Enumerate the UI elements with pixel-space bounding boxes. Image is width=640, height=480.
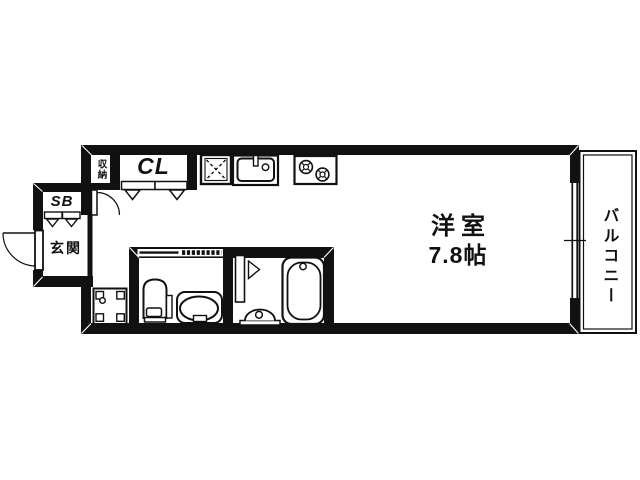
- kitchen-sink: [233, 156, 278, 186]
- main-room-name: 洋室: [425, 214, 491, 239]
- floor-plan-drawing: [0, 0, 640, 480]
- wall-storage-bottom: [91, 183, 110, 190]
- sliding-door-track: [138, 249, 224, 256]
- floor-plan: 収納 CL SB 玄関 洋室 7.8帖 バルコニー: [0, 0, 640, 480]
- wall-closet-right-stub: [187, 153, 197, 190]
- washing-machine-space: [94, 289, 127, 325]
- refrigerator-space: [201, 155, 231, 184]
- burner-right: [316, 168, 329, 181]
- entrance-label: 玄関: [42, 239, 90, 258]
- sliding-window: [564, 183, 586, 298]
- folding-door: [236, 256, 260, 303]
- wall-storage-closet-divider: [110, 153, 120, 190]
- entrance-door: [3, 231, 43, 271]
- storage-door-swing: [92, 190, 120, 215]
- wall-bathblock-left: [129, 247, 139, 325]
- bath-counter: [240, 310, 280, 326]
- bathtub: [283, 258, 325, 325]
- burner-left: [300, 161, 313, 174]
- main-room-size: 7.8帖: [429, 243, 488, 267]
- wall-left-upper: [81, 145, 91, 215]
- gas-stove: [295, 156, 337, 184]
- toilet: [144, 280, 173, 323]
- washbasin: [177, 292, 222, 323]
- balcony-label: バルコニー: [595, 183, 621, 331]
- shoe-box-doors: [45, 212, 81, 227]
- main-room-label: 洋室 7.8帖: [398, 214, 518, 267]
- storage-label: 収納: [91, 155, 110, 184]
- closet-label: CL: [120, 152, 187, 181]
- closet-doors: [122, 182, 188, 200]
- wall-bathblock-partition: [223, 258, 233, 325]
- wall-bathblock-right: [324, 247, 334, 325]
- shoe-box-label: SB: [43, 191, 81, 212]
